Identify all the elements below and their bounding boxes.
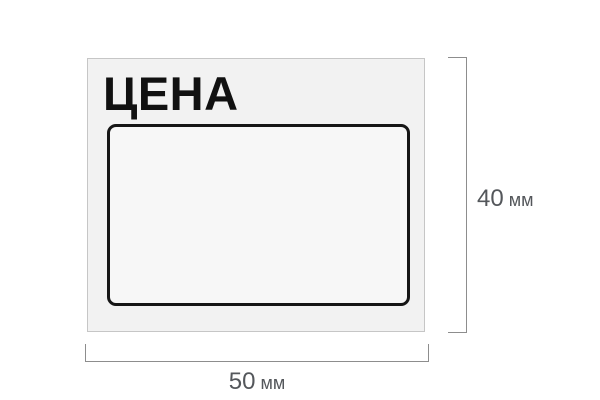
height-dimension-unit: мм bbox=[509, 190, 534, 211]
width-dimension-unit: мм bbox=[260, 373, 285, 393]
width-dimension-bracket bbox=[85, 344, 429, 362]
price-tag-title: ЦЕНА bbox=[103, 70, 239, 117]
height-dimension-value: 40 bbox=[477, 185, 504, 213]
price-tag-dimension-diagram: ЦЕНА 40 мм 50мм bbox=[0, 0, 600, 400]
height-dimension-bracket bbox=[448, 57, 467, 333]
width-dimension-label: 50мм bbox=[85, 368, 429, 396]
price-tag: ЦЕНА bbox=[87, 58, 425, 332]
width-dimension-value: 50 bbox=[229, 368, 256, 395]
height-dimension-label: 40 мм bbox=[477, 185, 533, 213]
price-write-area bbox=[107, 124, 410, 306]
